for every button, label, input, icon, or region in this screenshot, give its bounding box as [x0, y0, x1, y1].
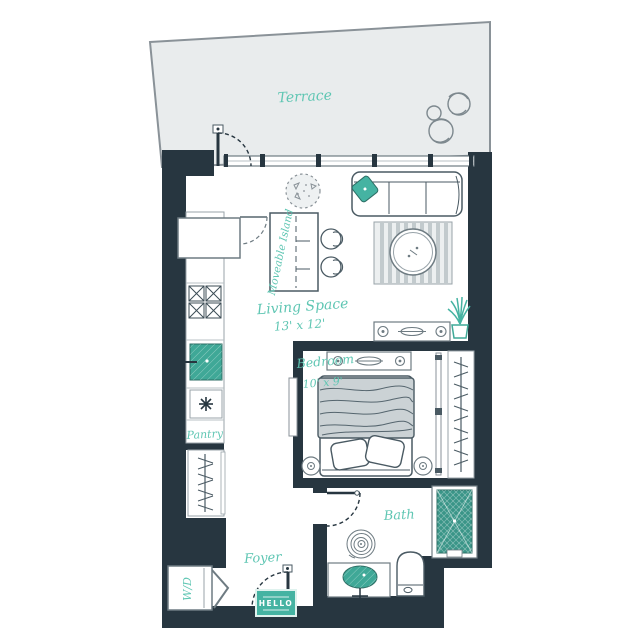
cabinet-door: [240, 217, 267, 244]
kitchen-sink: [185, 344, 222, 380]
welcome-mat-label: HELLO: [259, 599, 294, 608]
wall-living-bedroom: [293, 341, 474, 351]
coat-closet: [188, 450, 225, 516]
bar-stools: [321, 229, 343, 277]
shower: [432, 486, 477, 558]
bath-label: Bath: [382, 507, 415, 524]
pantry-label: Pantry: [185, 427, 224, 442]
washer-dryer-label: W/D: [181, 577, 194, 601]
coffee-table: [390, 229, 436, 275]
wall-kitchen-divider: [186, 443, 224, 450]
foyer-label: Foyer: [243, 550, 283, 567]
bathroom-door: [327, 491, 360, 526]
living-space: Moveable Island Livi: [255, 172, 470, 341]
bedroom: Bedroom 10' x 9': [289, 351, 474, 478]
living-space-label: Living Space: [255, 296, 349, 318]
welcome-mat: HELLO: [256, 590, 296, 616]
kitchen-island: Moveable Island: [266, 208, 318, 298]
washer-dryer: W/D: [168, 566, 228, 610]
sofa: [351, 172, 462, 216]
bathroom: Bath: [327, 486, 477, 601]
terrace-label: Terrace: [277, 88, 332, 107]
bedroom-closet: [435, 351, 474, 478]
dishwasher-icon: [190, 390, 222, 418]
window-wall: [224, 154, 474, 167]
wall-foyer-block: [186, 518, 226, 568]
wall-bath-bottom: [327, 596, 422, 628]
bath-rug: [347, 530, 375, 558]
bifold-door: [212, 570, 228, 608]
floor-plan: Pantry W/D HELLO Foyer: [0, 0, 634, 634]
side-table: [286, 174, 320, 208]
bedroom-sliding-door: [289, 378, 297, 436]
vanity-sink: [328, 563, 390, 601]
living-space-dims: 13' x 12': [274, 316, 326, 334]
wall-bath-left-stub: [313, 488, 327, 493]
wall-bath-left: [313, 524, 327, 612]
kitchen: Pantry: [178, 212, 267, 443]
toilet: [397, 552, 424, 596]
media-console: [374, 322, 450, 341]
plant-icon: [448, 297, 470, 338]
refrigerator: [178, 218, 240, 258]
bed: [318, 376, 414, 476]
floor-plan-svg: Pantry W/D HELLO Foyer: [0, 0, 634, 634]
